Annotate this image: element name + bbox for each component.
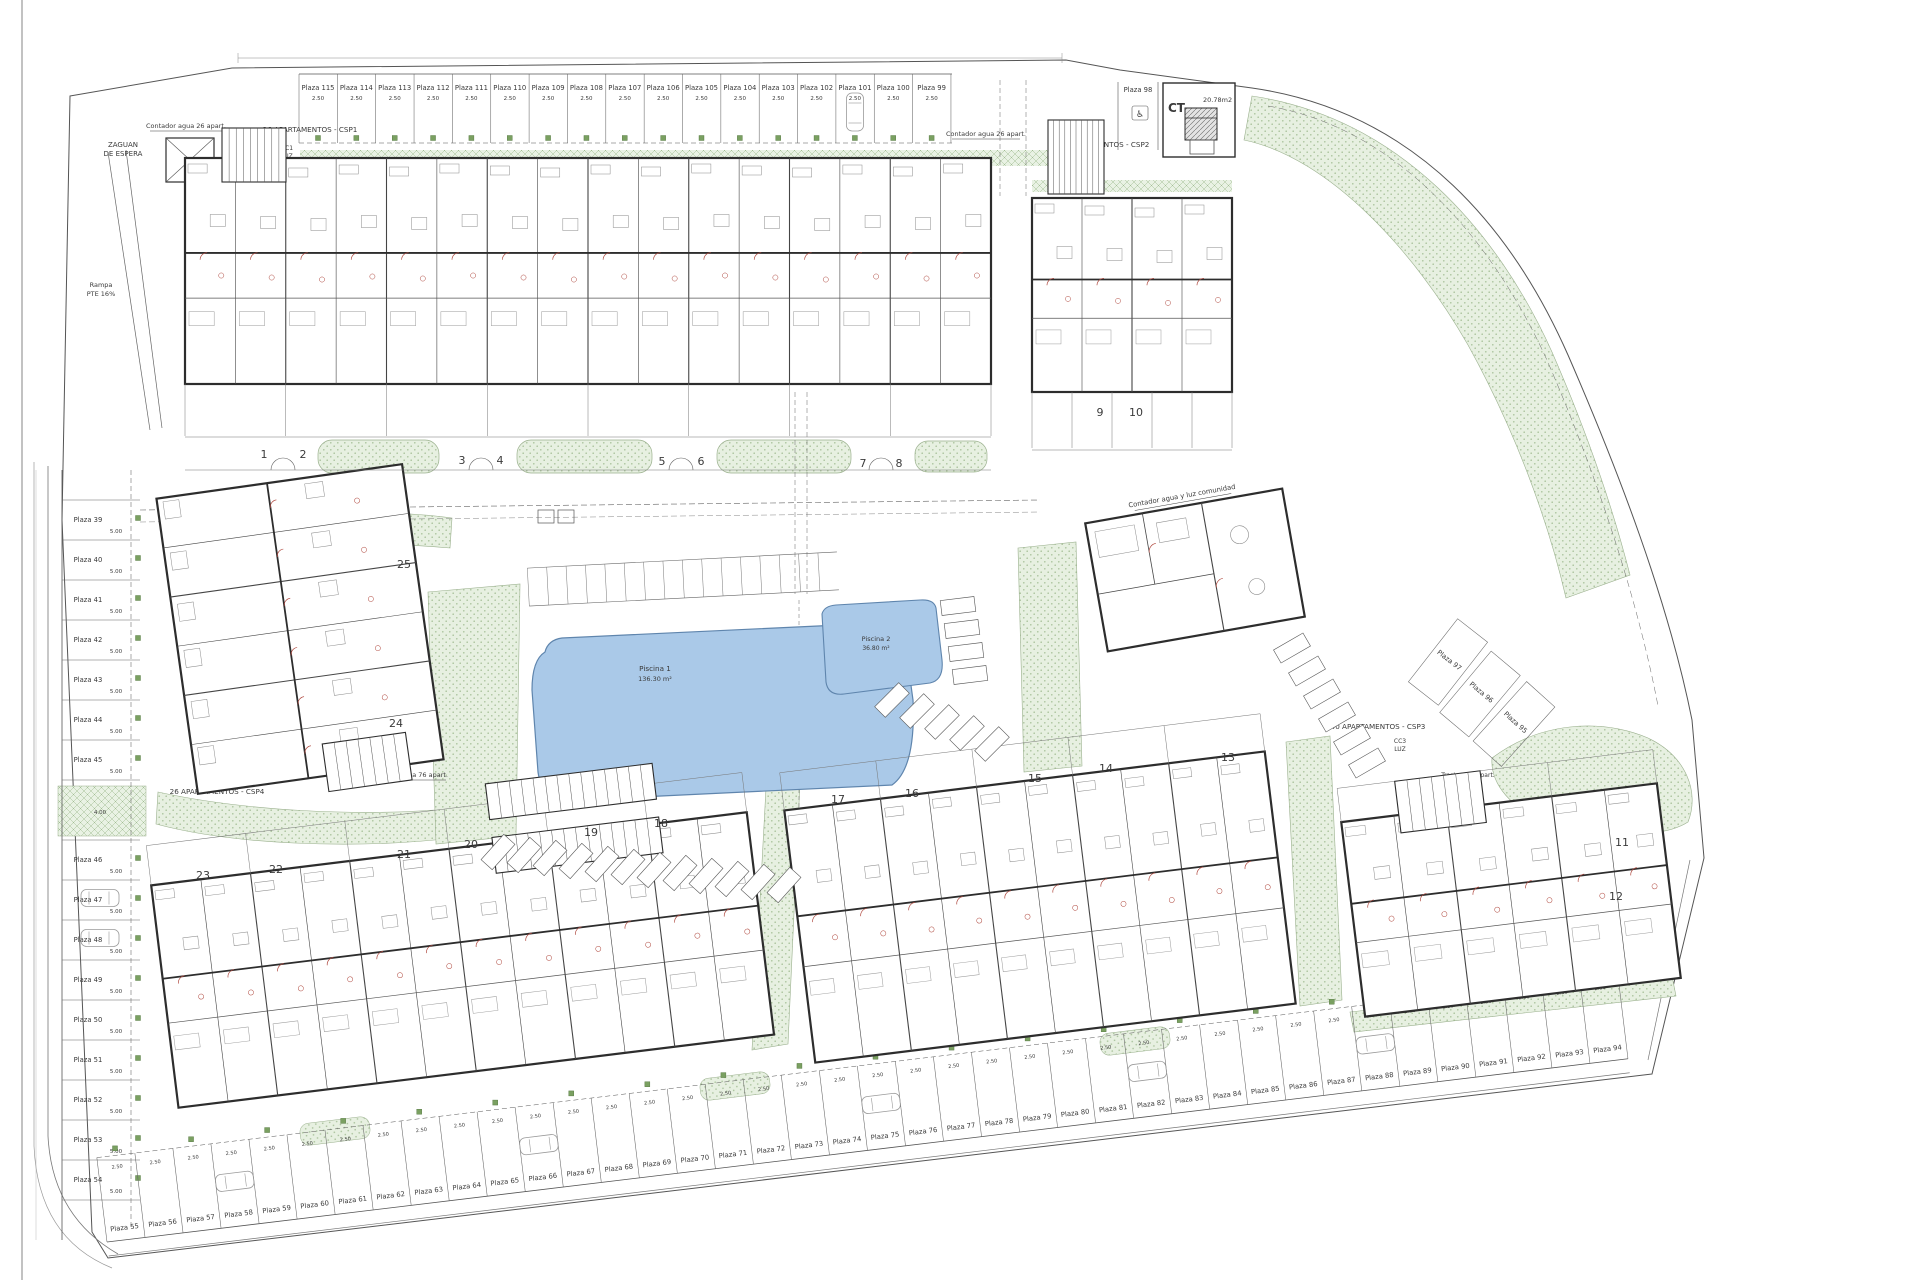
- planter-square: [929, 136, 934, 141]
- parking-stall-label: Plaza 112: [417, 84, 450, 92]
- parking-stall-label: Plaza 87: [1327, 1075, 1356, 1086]
- parking-stall-label: Plaza 59: [262, 1204, 291, 1215]
- block-number: 23: [196, 869, 210, 882]
- planter-square: [136, 896, 141, 901]
- stair-outline: [222, 128, 286, 182]
- parking-stall-label: Plaza 64: [452, 1181, 481, 1192]
- sunbed: [952, 665, 988, 684]
- parking-stall-label: Plaza 81: [1098, 1103, 1127, 1114]
- planter-square: [1329, 999, 1334, 1004]
- parking-stall-label: Plaza 106: [647, 84, 680, 92]
- stall-dim: 5.00: [110, 769, 123, 775]
- parking-stall-label: Plaza 89: [1403, 1066, 1432, 1077]
- communal-outline: [1085, 489, 1305, 652]
- stall-dim: 2.50: [542, 96, 555, 102]
- sunbed: [944, 619, 980, 638]
- block-number: 18: [654, 817, 668, 830]
- block-number: 9: [1097, 406, 1104, 419]
- parking-stall-label: Plaza 115: [301, 84, 334, 92]
- parking-stall-label: Plaza 73: [794, 1140, 823, 1151]
- car-glyph: [1127, 1061, 1167, 1083]
- stall-dim: 5.00: [110, 1109, 123, 1115]
- sunbed-divider: [527, 568, 529, 606]
- stall-dim: 2.50: [758, 1086, 770, 1093]
- parking-stall-label: Plaza 50: [74, 1016, 103, 1024]
- block-number: 14: [1099, 762, 1113, 775]
- stall-dim: 5.00: [110, 1029, 123, 1035]
- planter-square: [136, 856, 141, 861]
- parking-stall-label: Plaza 47: [74, 896, 103, 904]
- stall-dim: 2.50: [734, 96, 747, 102]
- planter-square: [469, 136, 474, 141]
- stall-dim: 2.50: [1328, 1017, 1340, 1024]
- planter-square: [189, 1137, 194, 1142]
- stall-dim: 2.50: [834, 1077, 846, 1084]
- planter-square: [661, 136, 666, 141]
- stall-dim: 2.50: [925, 96, 938, 102]
- stall-dim: 2.50: [568, 1109, 580, 1116]
- building-csp2: [1032, 198, 1232, 392]
- planter-square: [776, 136, 781, 141]
- stall-dim: 2.50: [454, 1122, 466, 1129]
- stall-dim: 2.50: [263, 1145, 275, 1152]
- parking-stall-label: Plaza 62: [376, 1190, 405, 1201]
- stall-dim: 5.00: [110, 869, 123, 875]
- parking-stall-label: Plaza 79: [1022, 1112, 1051, 1123]
- planter-square: [136, 1096, 141, 1101]
- car-rear-window: [1157, 1064, 1159, 1077]
- block-number: 17: [831, 793, 845, 806]
- sunbed: [925, 705, 960, 740]
- parking-stall-label: Plaza 70: [680, 1153, 709, 1164]
- planter-square: [891, 136, 896, 141]
- parking-stall-label: Plaza 84: [1213, 1089, 1242, 1100]
- parking-stall-label: Plaza 88: [1365, 1071, 1394, 1082]
- stall-dim: 2.50: [682, 1095, 694, 1102]
- sunbed-chain: [940, 596, 988, 684]
- planter-square: [316, 136, 321, 141]
- pool-plant-box: [538, 510, 554, 523]
- pool-2-name: Piscina 2: [862, 635, 891, 643]
- ct-area-label: 20.78m2: [1203, 96, 1232, 104]
- car-glyph: [861, 1093, 901, 1115]
- stall-dim: 5.00: [110, 909, 123, 915]
- car-glyph: [519, 1134, 559, 1156]
- stall-dim: 2.50: [416, 1127, 428, 1134]
- water-meter-label-csp1: Contador agua 26 apart.: [146, 122, 226, 130]
- garden-fence: [1337, 788, 1341, 822]
- parking-stall-label: Plaza 40: [74, 556, 103, 564]
- car-rear-window: [1386, 1036, 1388, 1049]
- planter-square: [417, 1109, 422, 1114]
- planter-square: [136, 936, 141, 941]
- parking-stall-label: Plaza 107: [608, 84, 641, 92]
- block-number: 16: [905, 787, 919, 800]
- block-number: 11: [1615, 836, 1629, 849]
- garden-mound: [915, 441, 987, 472]
- planter-square: [136, 1056, 141, 1061]
- parking-stall-label: Plaza 83: [1175, 1094, 1204, 1105]
- ct-equipment: [1185, 108, 1217, 140]
- block-number: 7: [860, 457, 867, 470]
- ramp-label-2: PTE 16%: [87, 290, 116, 298]
- site-plan-drawing: Piscina 1 136.30 m² Piscina 2 36.80 m² C…: [0, 0, 1920, 1280]
- parking-stall-label: Plaza 48: [74, 936, 103, 944]
- sunbed-divider: [721, 558, 723, 596]
- parking-stall-label: Plaza 43: [74, 676, 103, 684]
- pools: Piscina 1 136.30 m² Piscina 2 36.80 m²: [532, 510, 942, 800]
- block-number: 21: [397, 848, 411, 861]
- stall-dim: 2.50: [810, 96, 823, 102]
- stall-dim: 2.50: [796, 1081, 808, 1088]
- sunbed: [1274, 633, 1311, 663]
- sunbed-divider: [605, 564, 607, 602]
- planter-square: [584, 136, 589, 141]
- sunbed: [940, 596, 976, 615]
- zaguan-label-1: ZAGUAN: [108, 141, 138, 149]
- planter-square: [493, 1100, 498, 1105]
- planter-square: [814, 136, 819, 141]
- planter-square: [136, 756, 141, 761]
- parking-stall-label: Plaza 105: [685, 84, 718, 92]
- building-csp3-label: 40 APARTAMENTOS - CSP3: [1331, 722, 1426, 731]
- garden-mound: [517, 440, 652, 473]
- parking-stall-label: Plaza 114: [340, 84, 373, 92]
- planter-square: [136, 1136, 141, 1141]
- planter-square: [265, 1128, 270, 1133]
- top-parking-row: Plaza 1152.50Plaza 1142.50Plaza 1132.50P…: [299, 74, 952, 143]
- sunbed: [1304, 679, 1341, 709]
- parking-stall-label: Plaza 61: [338, 1195, 367, 1206]
- parking-stall-label: Plaza 113: [378, 84, 411, 92]
- planter-square: [721, 1073, 726, 1078]
- stall-dim: 5.00: [110, 689, 123, 695]
- sunbed-divider: [760, 556, 762, 594]
- street-line-left-2: [34, 462, 112, 1268]
- block-number: 20: [464, 838, 478, 851]
- stall-dim: 2.50: [465, 96, 478, 102]
- planter-square: [852, 136, 857, 141]
- planter-square: [136, 516, 141, 521]
- planter-square: [136, 716, 141, 721]
- zaguan-label-2: DE ESPERA: [104, 150, 143, 158]
- car-body: [519, 1134, 559, 1156]
- parking-stall-label: Plaza 65: [490, 1176, 519, 1187]
- planter-square: [341, 1118, 346, 1123]
- stall-dim: 2.50: [378, 1132, 390, 1139]
- stall-dim: 5.00: [110, 609, 123, 615]
- block-number: 22: [269, 863, 283, 876]
- parking-stall-label: Plaza 72: [756, 1144, 785, 1155]
- block-number: 6: [698, 455, 705, 468]
- car-windshield: [529, 1139, 531, 1152]
- garden-mound: [717, 440, 851, 473]
- green-blob-24-bottom: [156, 792, 458, 844]
- parking-stall-label: Plaza 41: [74, 596, 103, 604]
- parking-stall-label: Plaza 85: [1251, 1085, 1280, 1096]
- planter-square: [354, 136, 359, 141]
- stall-dim: 2.50: [492, 1118, 504, 1125]
- stall-dim: 2.50: [887, 96, 900, 102]
- car-windshield: [871, 1098, 873, 1111]
- green-gap-2: [1286, 736, 1342, 1006]
- cc3-label-2: LUZ: [1394, 746, 1405, 753]
- plaza-98-label: Plaza 98: [1124, 86, 1153, 94]
- planter-square: [136, 976, 141, 981]
- planter-square: [699, 136, 704, 141]
- stall-dim: 2.50: [504, 96, 517, 102]
- sunbed-divider: [818, 553, 820, 591]
- car-body: [1356, 1033, 1396, 1055]
- parking-stall-label: Plaza 63: [414, 1185, 443, 1196]
- stall-dim: 2.50: [389, 96, 402, 102]
- stall-dim: 2.50: [772, 96, 785, 102]
- ramp-lines: [108, 150, 162, 430]
- parking-stall-label: Plaza 52: [74, 1096, 103, 1104]
- car-glyph: [215, 1171, 255, 1193]
- planter-square: [136, 676, 141, 681]
- parking-stall-label: Plaza 60: [300, 1199, 329, 1210]
- parking-stall-label: Plaza 109: [532, 84, 565, 92]
- car-rear-window: [245, 1173, 247, 1186]
- car-windshield: [225, 1176, 227, 1189]
- sunbed-divider: [585, 565, 587, 603]
- parking-stall-label: Plaza 90: [1441, 1062, 1470, 1073]
- passage-arc: [669, 458, 693, 470]
- parking-stall-label: Plaza 104: [723, 84, 756, 92]
- planter-square: [645, 1082, 650, 1087]
- parking-stall-label: Plaza 42: [74, 636, 103, 644]
- pool-plant-box: [558, 510, 574, 523]
- stall-dim: 2.50: [312, 96, 325, 102]
- stall-dim: 2.50: [350, 96, 363, 102]
- parking-stall-label: Plaza 67: [566, 1167, 595, 1178]
- pool-1-area: 136.30 m²: [638, 675, 672, 683]
- stall-dim: 5.00: [110, 569, 123, 575]
- car-body: [215, 1171, 255, 1193]
- block-number: 4: [497, 454, 504, 467]
- sunbed: [950, 716, 985, 751]
- parking-stall-label: Plaza 74: [832, 1135, 861, 1146]
- stall-dim: 5.00: [110, 729, 123, 735]
- block-number: 19: [584, 826, 598, 839]
- sunbed-divider: [547, 567, 549, 605]
- parking-stall-label: Plaza 58: [224, 1208, 253, 1219]
- sunbed-divider: [624, 563, 626, 601]
- planter-square: [507, 136, 512, 141]
- stair-core: [222, 128, 286, 182]
- block-number: 25: [397, 558, 411, 571]
- stall-dim: 2.50: [1252, 1026, 1264, 1033]
- ramp-label-1: Rampa: [90, 281, 113, 289]
- gap-dim: 4.00: [94, 810, 107, 816]
- parking-stall-label: Plaza 66: [528, 1172, 557, 1183]
- parking-stall-label: Plaza 100: [877, 84, 910, 92]
- green-patch: [1099, 1026, 1171, 1056]
- stall-dim: 5.00: [110, 529, 123, 535]
- pool-2-area: 36.80 m²: [862, 645, 890, 652]
- parking-stall-label: Plaza 101: [838, 84, 871, 92]
- planter-square: [797, 1063, 802, 1068]
- parking-stall-label: Plaza 96: [1468, 680, 1495, 705]
- stall-dim: 2.50: [1062, 1049, 1074, 1056]
- stall-dim: 2.50: [225, 1150, 237, 1157]
- parking-stall-label: Plaza 91: [1479, 1057, 1508, 1068]
- green-band-pool-right: [1018, 542, 1082, 772]
- sunbed-divider: [566, 566, 568, 604]
- parking-stall-label: Plaza 78: [984, 1117, 1013, 1128]
- street-line-bottom: [109, 1073, 1630, 1256]
- pool-1-name: Piscina 1: [639, 664, 671, 673]
- planter-square: [113, 1146, 118, 1151]
- stall-dim: 5.00: [110, 649, 123, 655]
- parking-stall-label: Plaza 110: [493, 84, 526, 92]
- stall-dim: 5.00: [110, 1069, 123, 1075]
- block-number: 2: [300, 448, 307, 461]
- sunbed-divider: [702, 559, 704, 597]
- stall-dim: 2.50: [340, 1136, 352, 1143]
- stall-dim: 2.50: [1024, 1054, 1036, 1061]
- stall-dim: 2.50: [948, 1063, 960, 1070]
- sunbed-divider: [799, 554, 801, 592]
- planter-square: [392, 136, 397, 141]
- parking-stall-label: Plaza 92: [1517, 1053, 1546, 1064]
- parking-stall-label: Plaza 57: [186, 1213, 215, 1224]
- road-dashed: [795, 392, 807, 594]
- sunbed-row: [527, 552, 839, 606]
- water-meter-label-csp2: Contador agua 26 apart.: [946, 130, 1026, 138]
- parking-stall-label: Plaza 71: [718, 1149, 747, 1160]
- stair-core: [1048, 120, 1104, 194]
- parking-stall-label: Plaza 68: [604, 1163, 633, 1174]
- parking-stall-label: Plaza 56: [148, 1217, 177, 1228]
- stall-dim: 2.50: [619, 96, 632, 102]
- stall-dim: 2.50: [530, 1113, 542, 1120]
- stall-dim: 2.50: [1290, 1022, 1302, 1029]
- road-dashed: [1000, 80, 1026, 196]
- parking-stall-label: Plaza 45: [74, 756, 103, 764]
- stall-dim: 2.50: [695, 96, 708, 102]
- parking-stall-label: Plaza 97: [1435, 648, 1463, 672]
- parking-stall-label: Plaza 76: [908, 1126, 937, 1137]
- block-number: 24: [389, 717, 403, 730]
- sunbed-divider: [644, 562, 646, 600]
- parking-stall-label: Plaza 108: [570, 84, 603, 92]
- parking-stall-label: Plaza 75: [870, 1130, 899, 1141]
- parking-stall-label: Plaza 82: [1136, 1098, 1165, 1109]
- sunbed: [975, 727, 1010, 762]
- stall-dim: 5.00: [110, 989, 123, 995]
- disabled-parking-icon: ♿: [1136, 110, 1144, 120]
- parking-stall-label: Plaza 94: [1593, 1043, 1622, 1054]
- stall-dim: 2.50: [580, 96, 593, 102]
- stall-dim: 2.50: [910, 1067, 922, 1074]
- block-number: 13: [1221, 751, 1235, 764]
- passage-arc: [869, 458, 893, 470]
- stall-dim: 2.50: [849, 96, 862, 102]
- cc3-label-1: CC3: [1394, 738, 1406, 745]
- parking-stall-label: Plaza 51: [74, 1056, 103, 1064]
- sunbed-divider: [779, 555, 781, 593]
- block-number: 5: [659, 455, 666, 468]
- sunbed: [1289, 656, 1326, 686]
- passage-arc: [271, 458, 295, 470]
- block-number: 3: [459, 454, 466, 467]
- parking-stall-label: Plaza 99: [917, 84, 946, 92]
- car-body: [861, 1093, 901, 1115]
- car-windshield: [1366, 1039, 1368, 1052]
- parking-stall-label: Plaza 86: [1289, 1080, 1318, 1091]
- parking-stall-label: Plaza 80: [1060, 1108, 1089, 1119]
- building-csp1: [185, 158, 991, 384]
- planter-square: [136, 636, 141, 641]
- sunbed-divider: [682, 560, 684, 598]
- stall-dim: 2.50: [986, 1058, 998, 1065]
- parking-stall-label: Plaza 95: [1502, 710, 1529, 735]
- stall-dim: 2.50: [657, 96, 670, 102]
- car-glyph: [1356, 1033, 1396, 1055]
- planter-square: [737, 136, 742, 141]
- stall-dim: 5.00: [110, 949, 123, 955]
- left-parking-col: Plaza 395.00Plaza 405.00Plaza 415.00Plaz…: [62, 470, 141, 1240]
- parking-stall-label: Plaza 49: [74, 976, 103, 984]
- parking-stall-label: Plaza 93: [1555, 1048, 1584, 1059]
- parking-stall-label: Plaza 69: [642, 1158, 671, 1169]
- sunbed: [1349, 748, 1386, 778]
- parking-stall-label: Plaza 77: [946, 1121, 975, 1132]
- stall-dim: 2.50: [1176, 1035, 1188, 1042]
- planter-square: [622, 136, 627, 141]
- stall-dim: 2.50: [302, 1141, 314, 1148]
- stall-dim: 2.50: [644, 1099, 656, 1106]
- garden-fence: [972, 749, 977, 787]
- car-windshield: [1138, 1066, 1140, 1079]
- parking-stall-label: Plaza 55: [110, 1222, 139, 1233]
- stall-dim: 2.50: [187, 1154, 199, 1161]
- sunbed-divider: [663, 561, 665, 599]
- planter-square: [136, 1016, 141, 1021]
- stair-core: [1395, 771, 1487, 833]
- parking-stall-label: Plaza 102: [800, 84, 833, 92]
- car-rear-window: [549, 1137, 551, 1150]
- stall-dim: 2.50: [872, 1072, 884, 1079]
- sunbed-divider: [740, 557, 742, 595]
- parking-stall-label: Plaza 111: [455, 84, 488, 92]
- garden-fence: [146, 846, 151, 886]
- parking-stall-label: Plaza 53: [74, 1136, 103, 1144]
- stall-dim: 5.00: [110, 1189, 123, 1195]
- block-number: 1: [261, 448, 268, 461]
- stall-dim: 2.50: [149, 1159, 161, 1166]
- block-number: 12: [1609, 890, 1623, 903]
- communal-building: [1085, 489, 1305, 652]
- garden-fence: [1260, 714, 1265, 752]
- planter-square: [546, 136, 551, 141]
- planter-square: [569, 1091, 574, 1096]
- passage-arc: [469, 458, 493, 470]
- block-number: 15: [1028, 772, 1042, 785]
- site-plan-page: Piscina 1 136.30 m² Piscina 2 36.80 m² C…: [0, 0, 1920, 1280]
- planter-square: [136, 556, 141, 561]
- stall-dim: 2.50: [1214, 1031, 1226, 1038]
- garden-fence: [1164, 726, 1169, 764]
- stall-dim: 2.50: [427, 96, 440, 102]
- parking-stall-label: Plaza 39: [74, 516, 103, 524]
- planter-square: [431, 136, 436, 141]
- parking-stall-label: Plaza 54: [74, 1176, 103, 1184]
- ct-label: CT: [1168, 101, 1186, 115]
- stair-outline: [1395, 771, 1487, 833]
